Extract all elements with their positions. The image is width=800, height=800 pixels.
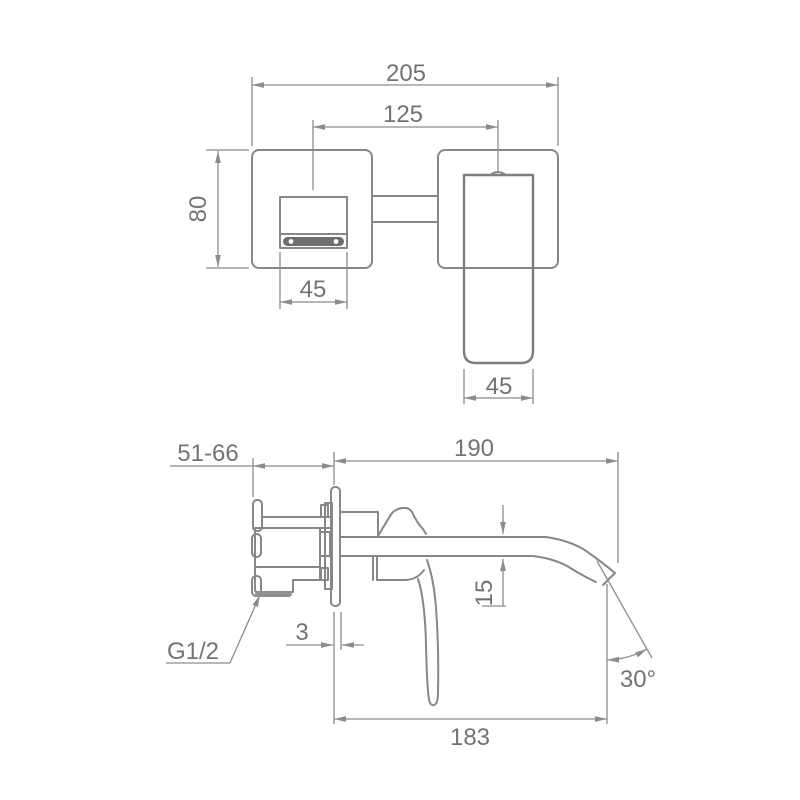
technical-drawing-page: 205 125 80 45 45 <box>0 0 800 800</box>
front-aerator-slot <box>283 237 344 246</box>
dim-handle-width: 45 <box>464 369 533 404</box>
dim-overall-width-label: 205 <box>386 60 426 87</box>
side-thread-end <box>255 591 292 597</box>
dim-spout-reach-label: 190 <box>454 435 494 462</box>
front-spout-plate <box>252 150 372 268</box>
dim-spout-projection: 183 <box>334 584 607 751</box>
side-handle-lever <box>418 560 438 705</box>
dim-spout-width-label: 45 <box>300 276 327 303</box>
dim-spout-width: 45 <box>280 252 347 309</box>
dim-installation-depth: 51-66 <box>170 440 334 497</box>
dim-plate-height-label: 80 <box>185 196 212 223</box>
side-valve-body <box>252 500 332 597</box>
side-view: 51-66 190 15 3 183 <box>166 435 656 751</box>
side-spout-bottom <box>340 556 596 582</box>
front-connecting-bar <box>372 196 438 222</box>
dim-spout-reach: 190 <box>334 435 618 563</box>
dim-spout-thickness-label: 15 <box>471 580 498 607</box>
faucet-dimension-drawing: 205 125 80 45 45 <box>0 0 800 800</box>
dim-installation-depth-label: 51-66 <box>177 440 238 467</box>
dim-centers-distance: 125 <box>313 101 498 190</box>
dim-handle-width-label: 45 <box>486 373 513 400</box>
dim-centers-distance-label: 125 <box>383 101 423 128</box>
outlet-angle-reference-line <box>597 561 652 658</box>
thread-callout: G1/2 <box>166 595 260 665</box>
dim-plate-offset-label: 3 <box>295 619 308 646</box>
dim-plate-height: 80 <box>185 150 249 268</box>
side-handle-top-lever <box>378 508 426 536</box>
dim-plate-offset: 3 <box>286 612 364 724</box>
front-view: 205 125 80 45 45 <box>185 60 558 404</box>
dim-spout-projection-label: 183 <box>450 724 490 751</box>
thread-callout-label: G1/2 <box>167 638 219 665</box>
dim-outlet-angle-label: 30° <box>620 666 656 693</box>
